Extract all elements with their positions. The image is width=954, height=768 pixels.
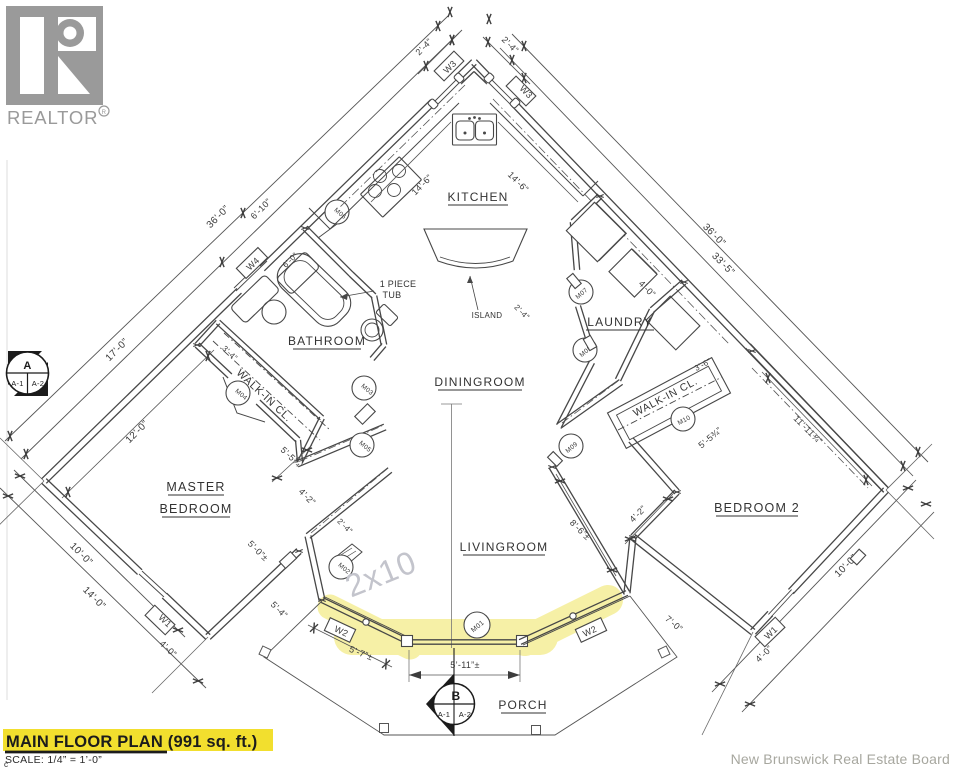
svg-text:c: c [4,760,8,768]
svg-text:A-2: A-2 [32,379,45,388]
svg-text:12’-0”: 12’-0” [124,419,151,446]
svg-text:DININGROOM: DININGROOM [434,375,525,389]
svg-text:1 PIECE: 1 PIECE [380,279,417,289]
svg-text:A-1: A-1 [438,710,451,719]
svg-text:3’-4”: 3’-4” [220,344,239,363]
svg-text:33’-5”: 33’-5” [709,251,736,278]
svg-text:SCALE: 1/4” = 1’-0”: SCALE: 1/4” = 1’-0” [5,754,102,766]
svg-text:BATHROOM: BATHROOM [288,334,366,348]
svg-text:REALTOR: REALTOR [7,107,98,128]
svg-text:A-1: A-1 [11,379,24,388]
svg-text:7’-0”: 7’-0” [663,614,684,634]
svg-text:2’-4”: 2’-4” [335,517,354,536]
svg-text:MASTER: MASTER [166,480,225,494]
svg-text:A-2: A-2 [459,710,472,719]
svg-text:TUB: TUB [383,290,402,300]
svg-text:4’-0”: 4’-0” [158,638,179,659]
svg-text:2’-4”: 2’-4” [512,303,531,322]
svg-text:5’-4”: 5’-4” [269,599,290,620]
svg-text:MAIN FLOOR PLAN (991 sq. ft.): MAIN FLOOR PLAN (991 sq. ft.) [6,733,257,751]
svg-text:17’-0”: 17’-0” [104,337,131,364]
svg-text:LAUNDRY: LAUNDRY [587,315,653,329]
svg-text:BEDROOM: BEDROOM [160,502,233,516]
svg-text:A: A [23,360,31,372]
svg-text:4’-2”: 4’-2” [297,486,318,507]
svg-text:5’-11”±: 5’-11”± [450,660,479,670]
svg-text:36’-0”: 36’-0” [700,222,727,249]
svg-text:PORCH: PORCH [498,698,547,712]
svg-text:R: R [102,110,107,116]
svg-text:KITCHEN: KITCHEN [447,190,508,204]
svg-text:2’-4”: 2’-4” [413,36,434,57]
svg-text:5’-0”±: 5’-0”± [246,539,271,564]
svg-text:3’-6”: 3’-6” [693,357,713,373]
svg-text:ISLAND: ISLAND [472,311,503,320]
svg-text:4’-0”: 4’-0” [753,643,774,664]
svg-text:14’-6”: 14’-6” [506,170,531,195]
svg-text:B: B [452,689,461,703]
svg-text:2’-4”: 2’-4” [500,34,521,55]
svg-text:LIVINGROOM: LIVINGROOM [460,540,549,554]
svg-text:New Brunswick Real Estate Boar: New Brunswick Real Estate Board [731,751,950,767]
svg-text:14’-6”: 14’-6” [410,173,435,198]
svg-text:11’-11¾”: 11’-11¾” [792,413,825,446]
svg-text:5’-5¾”: 5’-5¾” [696,425,723,450]
svg-text:BEDROOM 2: BEDROOM 2 [714,501,800,515]
